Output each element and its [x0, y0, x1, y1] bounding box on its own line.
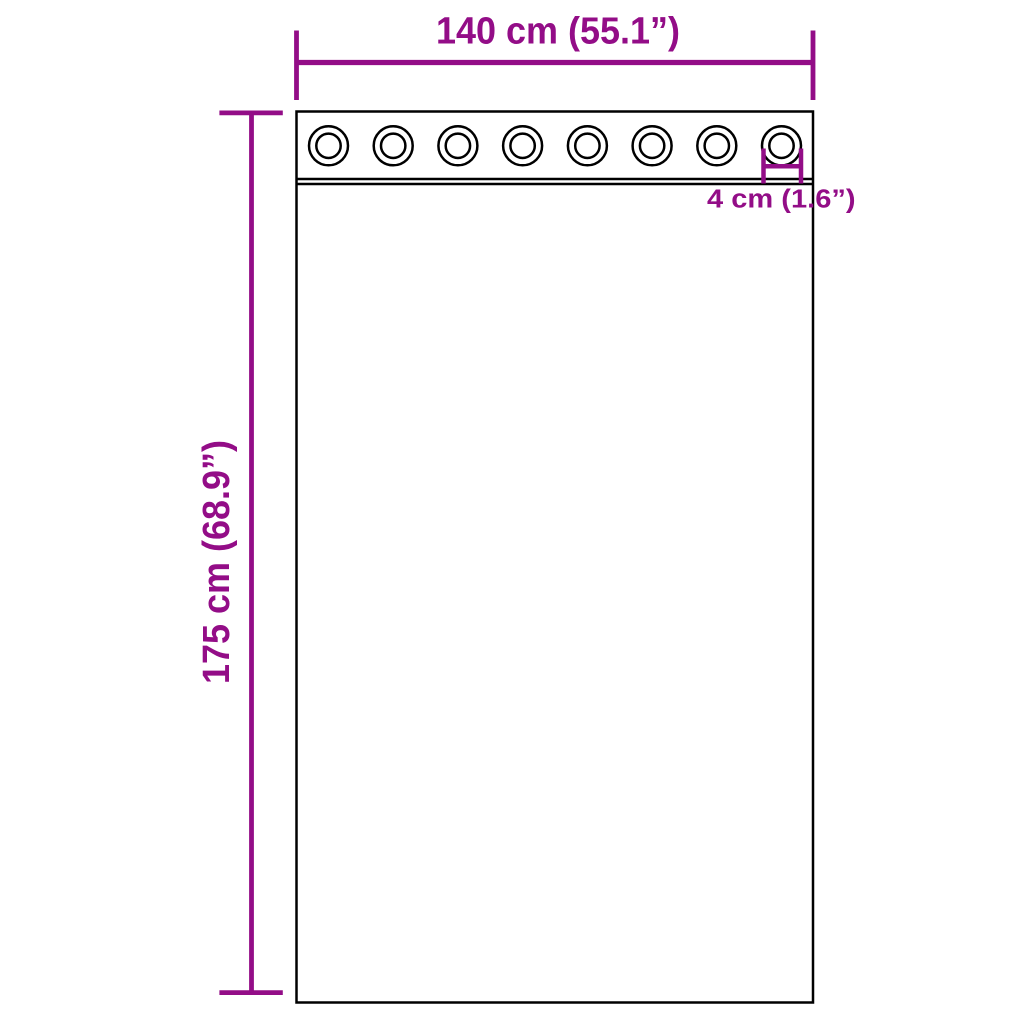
svg-text:140 cm (55.1”): 140 cm (55.1”) — [436, 11, 680, 53]
svg-text:4 cm (1.6”): 4 cm (1.6”) — [707, 185, 856, 213]
svg-text:175 cm (68.9”): 175 cm (68.9”) — [196, 440, 238, 684]
